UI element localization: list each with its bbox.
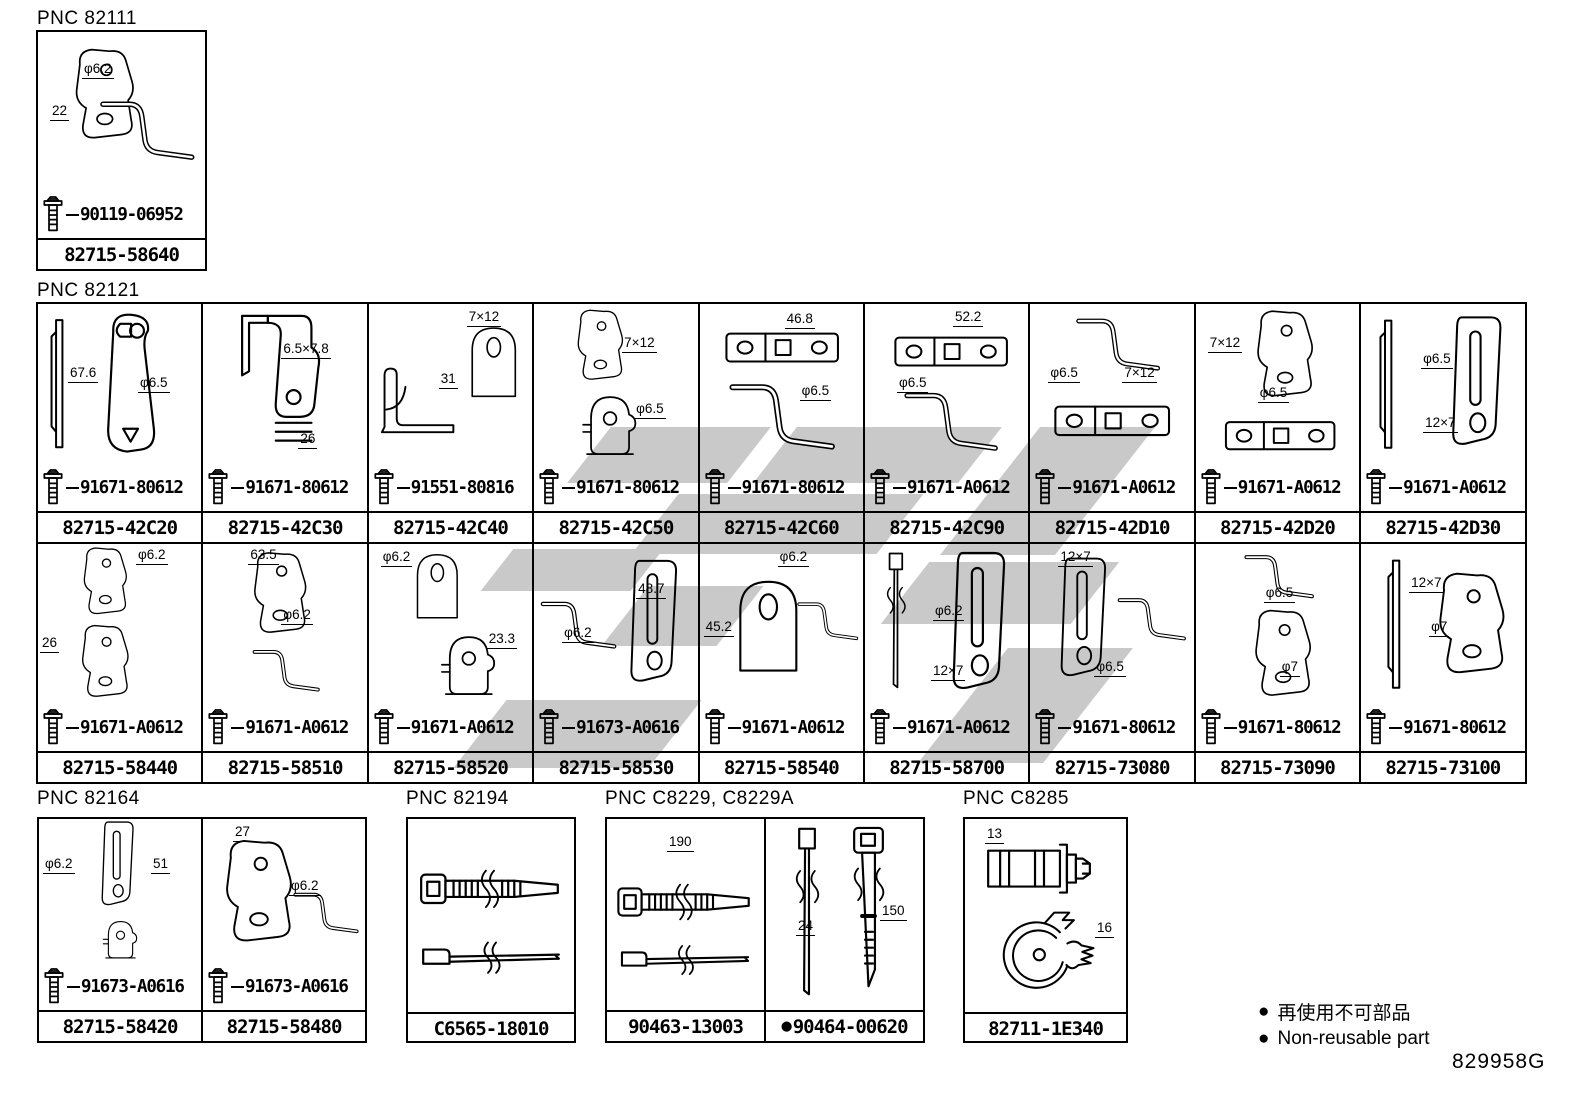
part-drawing: φ6.2 45.2: [700, 544, 863, 705]
part-cell: 46.8 φ6.5 91671-80612 82715-42C60: [700, 304, 865, 544]
part-drawing: φ6.2 22: [38, 32, 205, 192]
bolt-row: 91671-80612: [38, 465, 201, 511]
dimension-label: φ6.5: [634, 402, 666, 419]
part-number: 82715-58700: [865, 751, 1028, 782]
bolt-part-number: 91671-A0612: [80, 718, 183, 738]
bolt-icon: [372, 468, 396, 508]
dimension-label: φ6.2: [82, 62, 114, 79]
bolt-row: 91671-A0612: [203, 705, 366, 751]
bolt-row: 91671-A0612: [1030, 465, 1193, 511]
non-reusable-dot: ●: [1258, 1029, 1269, 1048]
dimension-label: 46.8: [785, 312, 815, 329]
bolt-row: 91673-A0616: [203, 964, 365, 1010]
dimension-label: 31: [439, 372, 458, 389]
leader-line: [1224, 727, 1237, 729]
dimension-label: φ6.2: [933, 604, 965, 621]
part-cell: 190 90463-13003: [607, 819, 766, 1043]
bolt-icon: [206, 468, 230, 508]
bolt-icon: [868, 468, 892, 508]
part-cell: 7×12 φ6.5 91671-80612 82715-42C50: [534, 304, 699, 544]
bolt-part-number: 91671-A0612: [907, 478, 1010, 498]
dimension-label: φ6.5: [1264, 586, 1296, 603]
part-drawing: 7×12 φ6.5: [1196, 304, 1359, 465]
bolt-icon: [1033, 708, 1057, 748]
part-number: 82715-42C60: [700, 511, 863, 542]
dimension-label: φ6.5: [1421, 352, 1453, 369]
bolt-icon: [537, 708, 561, 748]
bracket-drawing: [534, 544, 697, 705]
leader-line: [397, 487, 410, 489]
part-number: 82715-42D30: [1361, 511, 1524, 542]
legend-text-jp: 再使用不可部品: [1277, 998, 1410, 1025]
bolt-part-number: 91673-A0616: [576, 718, 679, 738]
dimension-label: 150: [880, 904, 907, 921]
part-drawing: 46.8 φ6.5: [700, 304, 863, 465]
part-number: 82715-42C40: [369, 511, 532, 542]
part-number: 90464-00620: [793, 1016, 908, 1038]
part-cell: φ6.2 22 90119-06952 82715-58640: [38, 32, 207, 271]
dimension-label: φ6.5: [1094, 660, 1126, 677]
pnc-c8229-box: 190 90463-13003 24 150 ● 90464-00620: [605, 817, 925, 1043]
bolt-row: 91671-A0612: [369, 705, 532, 751]
bracket-drawing: [534, 304, 697, 465]
bolt-part-number: 91671-80612: [1403, 718, 1506, 738]
bolt-icon: [1364, 468, 1388, 508]
bolt-row: 91671-A0612: [38, 705, 201, 751]
pnc-82194-label: PNC 82194: [406, 788, 509, 810]
dimension-label: 7×12: [622, 336, 656, 353]
dimension-label: 12×7: [931, 664, 965, 681]
bolt-icon: [537, 468, 561, 508]
bolt-icon: [1364, 708, 1388, 748]
part-number: 82715-58540: [700, 751, 863, 782]
bolt-row: 91551-80816: [369, 465, 532, 511]
bolt-row: 91671-80612: [203, 465, 366, 511]
dimension-label: φ7: [1280, 660, 1300, 677]
bolt-row: 91671-A0612: [1361, 465, 1524, 511]
dimension-label: φ6.5: [897, 376, 929, 393]
part-number-row: ● 90464-00620: [766, 1010, 923, 1041]
part-cell: φ6.2 23.3 91671-A0612 82715-58520: [369, 544, 534, 784]
part-drawing: 7×12 31: [369, 304, 532, 465]
bracket-drawing: [1361, 304, 1524, 465]
dimension-label: φ6.2: [289, 879, 321, 896]
part-number: 82715-58640: [38, 238, 205, 269]
bolt-row: 91671-80612: [1361, 705, 1524, 751]
non-reusable-dot: ●: [1258, 1002, 1269, 1021]
leader-line: [397, 727, 410, 729]
dimension-label: φ6.2: [136, 548, 168, 565]
part-number: 82715-73080: [1030, 751, 1193, 782]
part-drawing: φ6.5 φ7: [1196, 544, 1359, 705]
leader-line: [1224, 487, 1237, 489]
part-cell: C6565-18010: [408, 819, 576, 1043]
leader-line: [728, 727, 741, 729]
part-cell: 6.5×7.8 26 91671-80612 82715-42C30: [203, 304, 368, 544]
part-drawing: 67.6 φ6.5: [38, 304, 201, 465]
leader-line: [893, 487, 906, 489]
leader-line: [231, 487, 244, 489]
part-cell: φ6.2 45.2 91671-A0612 82715-58540: [700, 544, 865, 784]
bolt-row: 91671-A0612: [865, 705, 1028, 751]
part-drawing: φ6.5 7×12: [1030, 304, 1193, 465]
bolt-icon: [372, 708, 396, 748]
bracket-drawing: [203, 819, 365, 964]
part-drawing: 52.2 φ6.5: [865, 304, 1028, 465]
part-drawing: 13 16: [965, 819, 1126, 1012]
pnc-82121-label: PNC 82121: [37, 280, 140, 302]
bolt-icon: [868, 708, 892, 748]
dimension-label: 12×7: [1058, 550, 1092, 567]
part-drawing: 48.7 φ6.2: [534, 544, 697, 705]
leader-line: [562, 727, 575, 729]
dimension-label: 24: [796, 919, 815, 936]
part-cell: φ6.5 φ7 91671-80612 82715-73090: [1196, 544, 1361, 784]
bracket-drawing: [203, 304, 366, 465]
part-cell: 24 150 ● 90464-00620: [766, 819, 925, 1043]
part-number: C6565-18010: [408, 1012, 574, 1043]
dimension-label: φ6.2: [281, 608, 313, 625]
dimension-label: 67.6: [68, 366, 98, 383]
part-cell: φ6.5 12×7 91671-A0612 82715-42D30: [1361, 304, 1526, 544]
bolt-part-number: 91671-80612: [80, 478, 183, 498]
part-cell: φ6.5 7×12 91671-A0612 82715-42D10: [1030, 304, 1195, 544]
leader-line: [66, 487, 79, 489]
dimension-label: 22: [50, 104, 69, 121]
cable-tie-drawing: [408, 819, 574, 1012]
bolt-part-number: 91671-80612: [742, 478, 845, 498]
dimension-label: φ6.2: [778, 550, 810, 567]
dimension-label: 190: [667, 835, 694, 852]
catalog-page: PNC 82111 φ6.2 22 90119-06952 82715-5864…: [0, 0, 1592, 1099]
part-number: 82715-42C50: [534, 511, 697, 542]
part-cell: 7×12 φ6.5 91671-A0612 82715-42D20: [1196, 304, 1361, 544]
bolt-row: 91673-A0616: [39, 964, 201, 1010]
dimension-label: 51: [151, 857, 170, 874]
part-cell: 48.7 φ6.2 91673-A0616 82715-58530: [534, 544, 699, 784]
part-drawing: φ6.2 51: [39, 819, 201, 964]
bolt-icon: [41, 195, 65, 235]
part-cell: 27 φ6.2 91673-A0616 82715-58480: [203, 819, 367, 1043]
bolt-part-number: 91671-A0612: [907, 718, 1010, 738]
leader-line: [893, 727, 906, 729]
dimension-label: 13: [985, 827, 1004, 844]
bolt-part-number: 91671-A0612: [1072, 478, 1175, 498]
bolt-icon: [42, 967, 66, 1007]
dimension-label: 23.3: [487, 632, 517, 649]
part-cell: φ6.2 26 91671-A0612 82715-58440: [38, 544, 203, 784]
bolt-row: 91673-A0616: [534, 705, 697, 751]
part-cell: 63.5 φ6.2 91671-A0612 82715-58510: [203, 544, 368, 784]
part-cell: 67.6 φ6.5 91671-80612 82715-42C20: [38, 304, 203, 544]
bolt-part-number: 91671-A0612: [742, 718, 845, 738]
dimension-label: φ6.5: [1048, 366, 1080, 383]
leader-line: [1058, 487, 1071, 489]
bracket-drawing: [865, 304, 1028, 465]
pnc-82111-label: PNC 82111: [37, 8, 137, 30]
part-number: 82715-42C30: [203, 511, 366, 542]
dimension-label: 16: [1095, 921, 1114, 938]
bolt-row: 91671-80612: [1030, 705, 1193, 751]
part-cell: 7×12 31 91551-80816 82715-42C40: [369, 304, 534, 544]
part-drawing: 27 φ6.2: [203, 819, 365, 964]
leader-line: [562, 487, 575, 489]
bolt-icon: [41, 708, 65, 748]
bolt-row: 91671-80612: [534, 465, 697, 511]
part-drawing: 6.5×7.8 26: [203, 304, 366, 465]
bolt-row: 91671-A0612: [700, 705, 863, 751]
bolt-part-number: 91671-80612: [1238, 718, 1341, 738]
bolt-icon: [703, 468, 727, 508]
part-number: 82715-58530: [534, 751, 697, 782]
part-number: 90463-13003: [607, 1010, 764, 1041]
leader-line: [231, 727, 244, 729]
dimension-label: φ7: [1429, 620, 1449, 637]
bolt-icon: [703, 708, 727, 748]
part-cell: φ6.2 12×7 91671-A0612 82715-58700: [865, 544, 1030, 784]
pnc-82164-box: φ6.2 51 91673-A0616 82715-58420 27 φ6.2: [37, 817, 367, 1043]
part-drawing: 190: [607, 819, 764, 1010]
bracket-drawing: [203, 544, 366, 705]
bolt-part-number: 91671-A0612: [245, 718, 348, 738]
pnc-82194-box: C6565-18010: [406, 817, 576, 1043]
leader-line: [231, 986, 244, 988]
bolt-part-number: 91671-A0612: [411, 718, 514, 738]
legend-item: ● 再使用不可部品: [1258, 998, 1430, 1025]
part-number: 82715-58510: [203, 751, 366, 782]
leader-line: [66, 214, 79, 216]
bolt-part-number: 91671-80612: [576, 478, 679, 498]
dimension-label: 6.5×7.8: [281, 342, 330, 359]
part-drawing: [408, 819, 574, 1012]
dimension-label: 27: [233, 825, 252, 842]
part-number: 82715-58480: [203, 1010, 365, 1041]
part-number: 82715-42D20: [1196, 511, 1359, 542]
bolt-part-number: 91551-80816: [411, 478, 514, 498]
dimension-label: 26: [40, 636, 59, 653]
part-drawing: φ6.5 12×7: [1361, 304, 1524, 465]
dimension-label: 52.2: [953, 310, 983, 327]
part-number: 82715-58440: [38, 751, 201, 782]
leader-line: [1389, 727, 1402, 729]
part-number: 82715-42C20: [38, 511, 201, 542]
part-number: 82715-73100: [1361, 751, 1524, 782]
pnc-c8285-box: 13 16 82711-1E340: [963, 817, 1128, 1043]
bracket-drawing: [38, 544, 201, 705]
part-drawing: 7×12 φ6.5: [534, 304, 697, 465]
leader-line: [728, 487, 741, 489]
bolt-row: 91671-A0612: [865, 465, 1028, 511]
bracket-drawing: [39, 819, 201, 964]
part-drawing: φ6.2 26: [38, 544, 201, 705]
bolt-icon: [1199, 468, 1223, 508]
part-number: 82715-42C90: [865, 511, 1028, 542]
dimension-label: φ6.2: [43, 857, 75, 874]
bolt-icon: [1033, 468, 1057, 508]
part-cell: φ6.2 51 91673-A0616 82715-58420: [39, 819, 203, 1043]
bolt-part-number: 91671-A0612: [1238, 478, 1341, 498]
pnc-82111-box: φ6.2 22 90119-06952 82715-58640: [36, 30, 207, 271]
bolt-part-number: 91671-A0612: [1403, 478, 1506, 498]
part-drawing: 63.5 φ6.2: [203, 544, 366, 705]
bracket-drawing: [865, 544, 1028, 705]
bolt-part-number: 91673-A0616: [81, 977, 184, 997]
legend-item: ● Non-reusable part: [1258, 1025, 1430, 1052]
part-cell: 12×7 φ6.5 91671-80612 82715-73080: [1030, 544, 1195, 784]
bracket-drawing: [1196, 544, 1359, 705]
dimension-label: φ6.5: [800, 384, 832, 401]
bolt-row: 90119-06952: [38, 192, 205, 238]
pnc-82164-label: PNC 82164: [37, 788, 140, 810]
bracket-drawing: [1030, 544, 1193, 705]
leader-line: [66, 727, 79, 729]
bolt-part-number: 91671-80612: [245, 478, 348, 498]
dimension-label: 45.2: [704, 620, 734, 637]
part-drawing: φ6.2 23.3: [369, 544, 532, 705]
pnc-c8285-label: PNC C8285: [963, 788, 1069, 810]
leader-line: [67, 986, 80, 988]
bolt-icon: [1199, 708, 1223, 748]
bolt-part-number: 91671-80612: [1072, 718, 1175, 738]
bracket-drawing: [700, 304, 863, 465]
bolt-icon: [206, 708, 230, 748]
dimension-label: 7×12: [1122, 366, 1156, 383]
dimension-label: φ6.5: [138, 376, 170, 393]
dimension-label: φ6.5: [1258, 386, 1290, 403]
dimension-label: 7×12: [467, 310, 501, 327]
bolt-part-number: 91673-A0616: [245, 977, 348, 997]
part-number: 82715-42D10: [1030, 511, 1193, 542]
bracket-drawing: [369, 544, 532, 705]
dimension-label: 48.7: [636, 582, 666, 599]
bolt-part-number: 90119-06952: [80, 205, 183, 225]
dimension-label: 7×12: [1208, 336, 1242, 353]
part-number: 82715-73090: [1196, 751, 1359, 782]
part-cell: 12×7 φ7 91671-80612 82715-73100: [1361, 544, 1526, 784]
leader-line: [1389, 487, 1402, 489]
leader-line: [1058, 727, 1071, 729]
part-number: 82715-58520: [369, 751, 532, 782]
dimension-label: 12×7: [1409, 576, 1443, 593]
dimension-label: 26: [298, 432, 317, 449]
bolt-row: 91671-80612: [700, 465, 863, 511]
part-drawing: 12×7 φ6.5: [1030, 544, 1193, 705]
clamp-drawing: [965, 819, 1126, 1012]
bolt-icon: [41, 468, 65, 508]
part-drawing: φ6.2 12×7: [865, 544, 1028, 705]
dimension-label: 12×7: [1423, 416, 1457, 433]
part-drawing: 12×7 φ7: [1361, 544, 1524, 705]
bolt-row: 91671-80612: [1196, 705, 1359, 751]
pnc-82121-grid: 67.6 φ6.5 91671-80612 82715-42C20 6.5×7.…: [36, 302, 1527, 784]
legend: ● 再使用不可部品 ● Non-reusable part: [1258, 998, 1430, 1052]
dimension-label: φ6.2: [381, 550, 413, 567]
part-cell: 52.2 φ6.5 91671-A0612 82715-42C90: [865, 304, 1030, 544]
bracket-drawing: [1030, 304, 1193, 465]
pnc-c8229-label: PNC C8229, C8229A: [605, 788, 794, 810]
legend-text-en: Non-reusable part: [1277, 1028, 1429, 1050]
bolt-icon: [206, 967, 230, 1007]
bracket-drawing: [38, 304, 201, 465]
page-code: 829958G: [1452, 1050, 1545, 1074]
dimension-label: 63.5: [248, 548, 278, 565]
non-reusable-dot: ●: [781, 1018, 790, 1035]
part-cell: 13 16 82711-1E340: [965, 819, 1128, 1043]
part-number: 82711-1E340: [965, 1012, 1126, 1043]
part-number: 82715-58420: [39, 1010, 201, 1041]
dimension-label: φ6.2: [562, 626, 594, 643]
bolt-row: 91671-A0612: [1196, 465, 1359, 511]
part-drawing: 24 150: [766, 819, 923, 1010]
